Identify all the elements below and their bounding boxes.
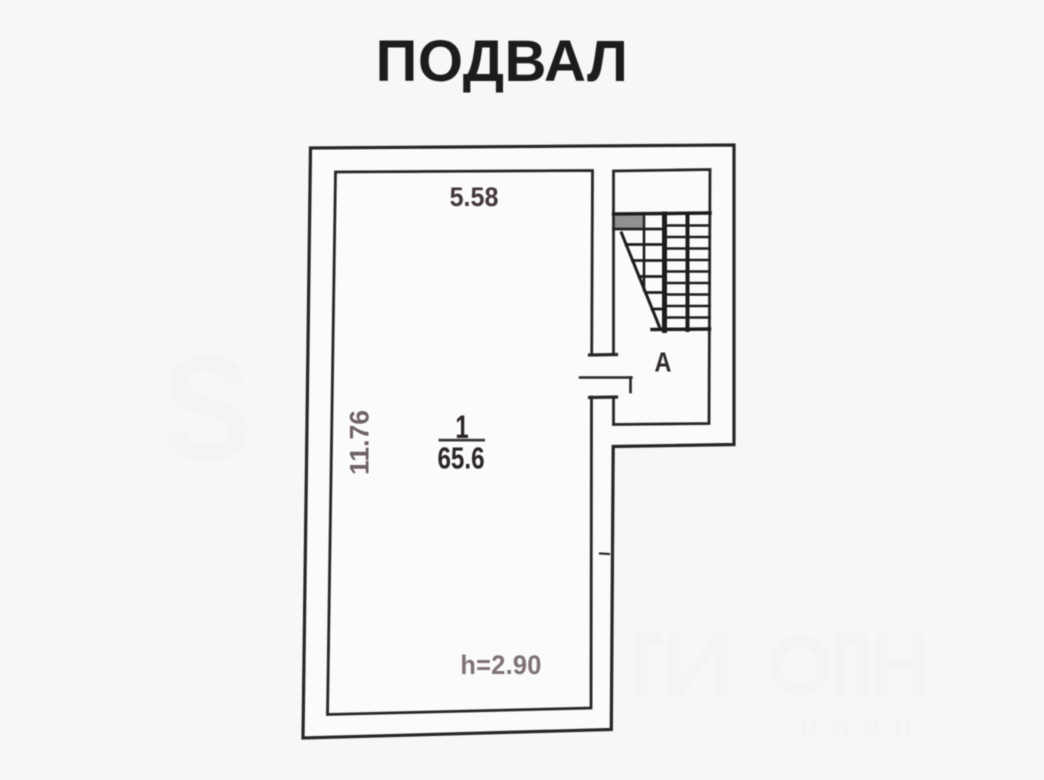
- svg-text:h=2.90: h=2.90: [460, 649, 541, 680]
- svg-text:5.58: 5.58: [450, 181, 499, 212]
- svg-text:11.76: 11.76: [345, 410, 375, 475]
- svg-text:циан: циан: [799, 708, 925, 743]
- svg-text:А: А: [655, 348, 672, 378]
- svg-text:S: S: [162, 325, 252, 492]
- svg-text:ПОДВАЛ: ПОДВАЛ: [376, 29, 629, 94]
- svg-text:65.6: 65.6: [437, 441, 484, 476]
